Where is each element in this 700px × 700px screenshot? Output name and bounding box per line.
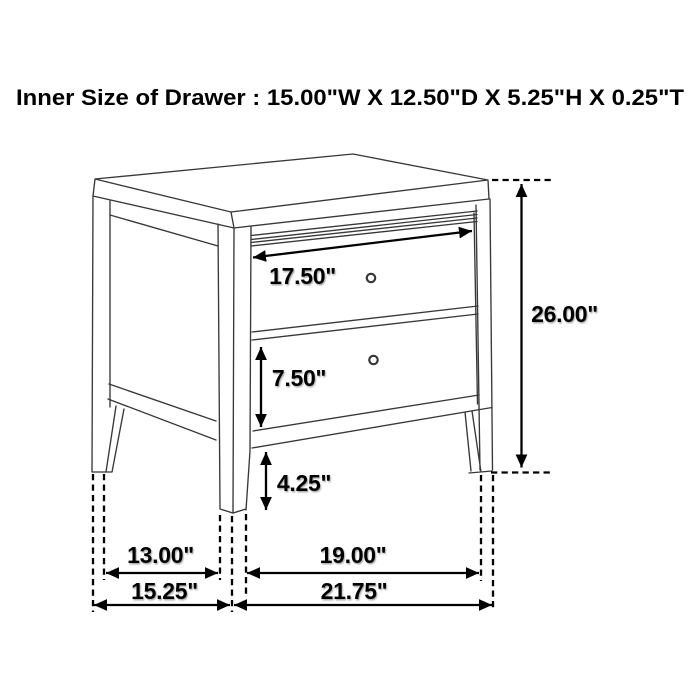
svg-text:15.25": 15.25" [131,578,198,604]
svg-text:4.25": 4.25" [277,470,331,496]
svg-text:26.00": 26.00" [531,301,598,327]
svg-text:19.00": 19.00" [320,542,387,568]
svg-text:17.50": 17.50" [269,263,336,289]
svg-text:7.50": 7.50" [272,365,326,391]
svg-text:13.00": 13.00" [127,542,194,568]
svg-text:Inner Size of Drawer : 15.00"W: Inner Size of Drawer : 15.00"W X 12.50"D… [16,85,685,110]
svg-text:21.75": 21.75" [321,578,388,604]
